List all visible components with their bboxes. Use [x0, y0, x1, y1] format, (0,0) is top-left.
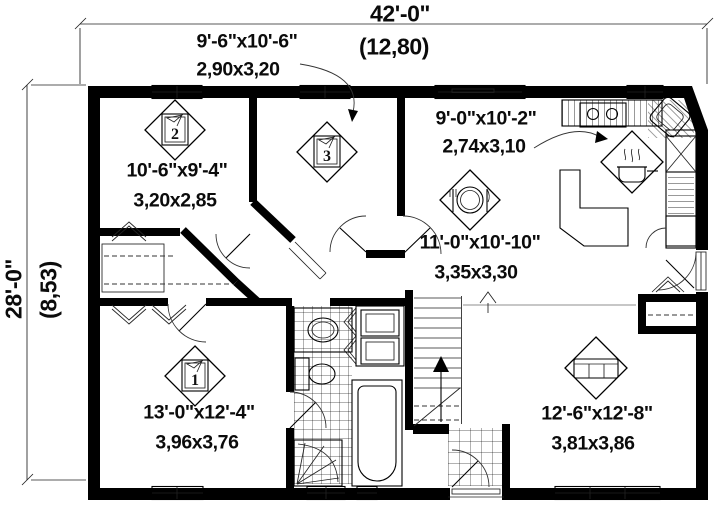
room-marker-1-number: 1 [191, 372, 199, 389]
width-dimension-label: 42'-0" [370, 1, 430, 28]
room-marker-2-number: 2 [171, 126, 179, 143]
bedroom3-size-imperial: 9'-6"x10'-6" [196, 31, 297, 54]
patio-door [658, 250, 709, 292]
corner-shower [294, 440, 342, 486]
room-marker-3-number: 3 [323, 148, 331, 165]
floor-plan-canvas: 2 3 1 [0, 0, 720, 513]
vanity-sink [294, 308, 352, 352]
bathroom-door [290, 392, 326, 428]
bedroom1-size-metric: 3,96x3,76 [155, 432, 238, 455]
toilet [295, 358, 335, 390]
bedroom3-door [330, 216, 366, 252]
refrigerator [646, 216, 696, 248]
front-door [448, 450, 504, 501]
interior-walls [100, 98, 700, 488]
bedroom2-size-metric: 3,20x2,85 [133, 190, 216, 213]
bathtub [352, 380, 402, 486]
stove [580, 103, 626, 127]
room-marker-1: 1 [165, 346, 225, 406]
floor-break-line [463, 292, 636, 313]
room-marker-3: 3 [297, 122, 357, 182]
height-dimension-label: 28'-0" [1, 259, 28, 319]
kitchen-counters [562, 100, 696, 246]
dining-size-imperial: 11'-0"x10'-10" [420, 232, 541, 255]
stairs-up-arrow-icon [433, 356, 449, 422]
living-size-metric: 3,81x3,86 [551, 433, 634, 456]
room-marker-2: 2 [145, 100, 205, 160]
washer-dryer-closet [356, 306, 404, 366]
kitchen-size-imperial: 9'-0"x10'-2" [435, 108, 536, 131]
kitchen-label-arrow [534, 131, 608, 148]
dishwasher [666, 136, 696, 172]
living-size-imperial: 12'-6"x12'-8" [541, 403, 652, 426]
height-dimension-metric: (8,53) [36, 261, 63, 319]
bedroom1-door [168, 304, 206, 342]
kitchen-icon [601, 131, 663, 193]
kitchen-island [560, 170, 628, 246]
stairs [414, 296, 462, 426]
dining-icon [440, 170, 500, 230]
width-dimension-metric: (12,80) [359, 34, 429, 61]
bedroom2-size-imperial: 10'-6"x9'-4" [126, 160, 227, 183]
kitchen-size-metric: 2,74x3,10 [442, 136, 525, 159]
bedroom1-size-imperial: 13'-0"x12'-4" [143, 402, 254, 425]
dining-size-metric: 3,35x3,30 [434, 262, 517, 285]
linen-closet [289, 242, 326, 279]
bedroom3-size-metric: 2,90x3,20 [196, 59, 279, 82]
sofa-icon [565, 337, 627, 399]
